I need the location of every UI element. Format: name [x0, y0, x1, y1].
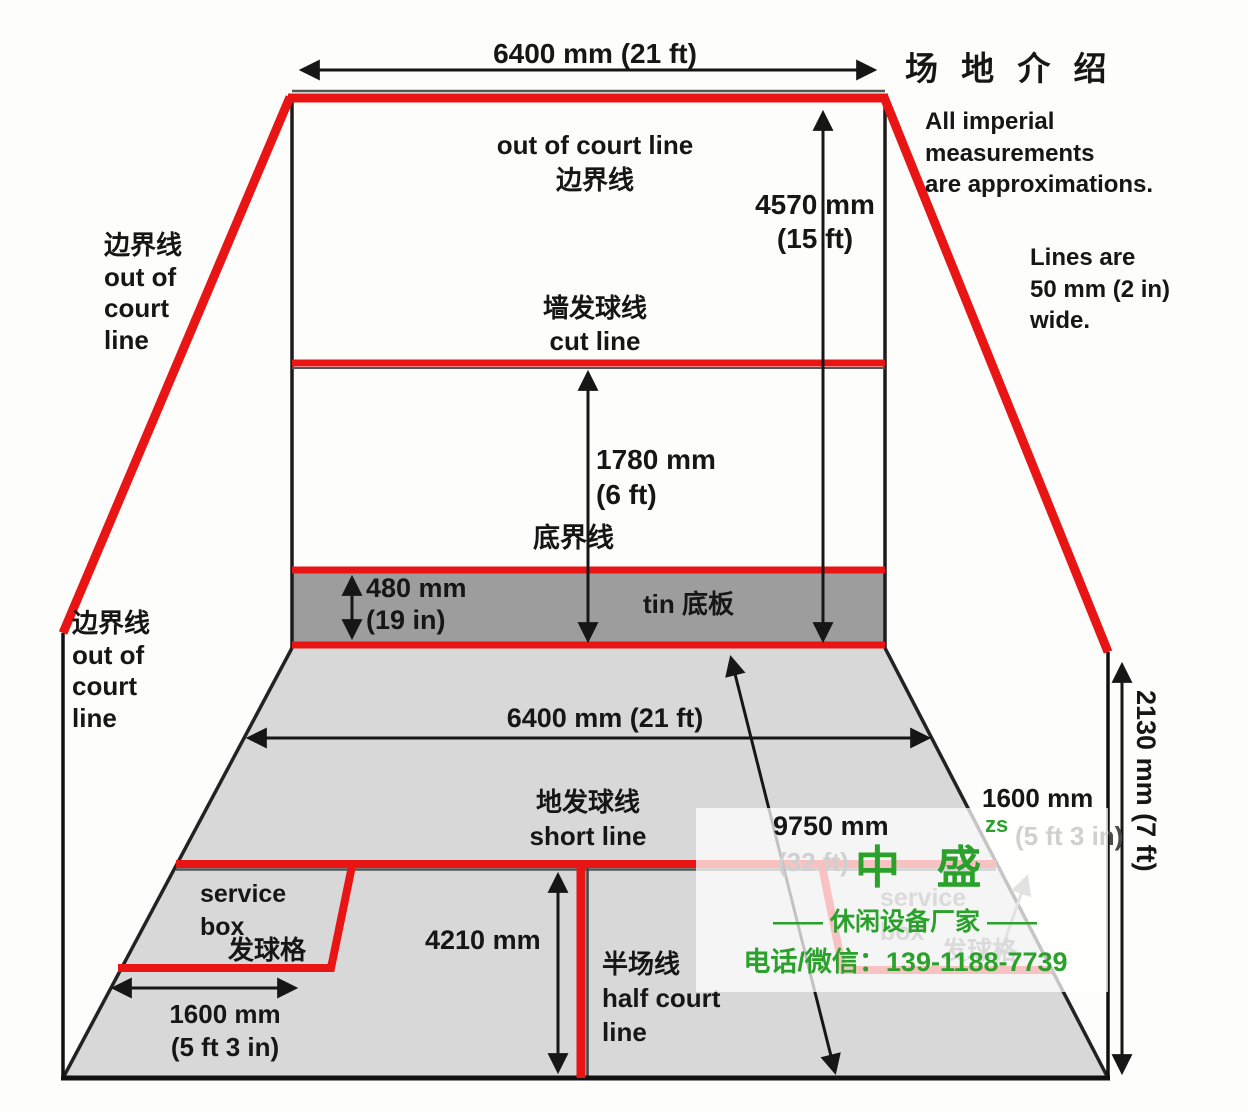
page-title: 场 地 介 绍: [905, 48, 1175, 89]
dim-floor-width: 6400 mm (21 ft): [440, 702, 770, 736]
squash-court-diagram: 6400 mm (21 ft) 场 地 介 绍 All imperial mea…: [0, 0, 1248, 1112]
dim-tin-height: 480 mm (19 in): [366, 572, 556, 637]
watermark-phone: 电话/微信：139-1188-7739: [698, 940, 1113, 979]
dim-cut-line-height: 1780 mm (6 ft): [596, 442, 816, 512]
label-short-line: 地发球线 short line: [478, 786, 698, 854]
label-out-of-court-left-upper: 边界线 out of court line: [104, 230, 224, 357]
label-tin: tin 底板: [643, 588, 803, 621]
watermark-brand: 中 盛: [855, 831, 994, 896]
out-of-court-line-left: [63, 97, 290, 633]
watermark-tagline: —— 休闲设备厂家 ——: [700, 902, 1110, 938]
dim-front-wall-width: 6400 mm (21 ft): [440, 36, 750, 71]
dim-front-wall-height: 4570 mm (15 ft): [690, 188, 940, 255]
watermark-initials: zs: [985, 812, 1008, 838]
imperial-note: All imperial measurements are approximat…: [925, 106, 1225, 201]
line-width-note: Lines are 50 mm (2 in) wide.: [1030, 242, 1240, 337]
dim-short-line-to-back: 4210 mm: [425, 924, 575, 958]
dim-service-box-width-left: 1600 mm (5 ft 3 in): [140, 998, 310, 1063]
dim-service-box-width-right: 1600 mm: [982, 782, 1112, 815]
label-out-of-court-left-lower: 边界线 out of court line: [72, 608, 192, 735]
label-cut-line: 墙发球线 cut line: [470, 292, 720, 357]
label-board-line: 底界线: [533, 522, 673, 556]
dim-back-wall-height: 2130 mm (7 ft): [1128, 690, 1162, 1020]
label-service-box-zh: 发球格: [228, 934, 348, 967]
